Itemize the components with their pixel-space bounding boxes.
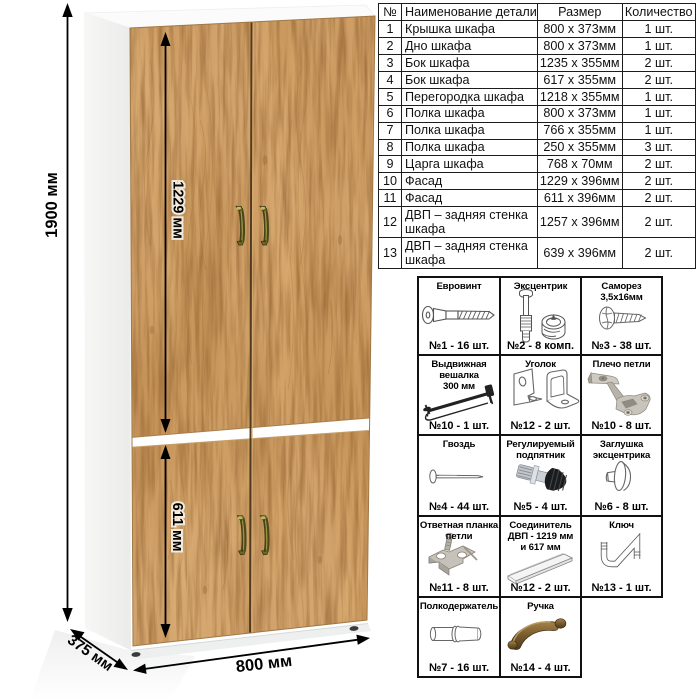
- svg-text:1229 мм: 1229 мм: [170, 181, 186, 239]
- svg-text:1900 мм: 1900 мм: [43, 172, 61, 238]
- svg-text:611 мм: 611 мм: [169, 503, 185, 552]
